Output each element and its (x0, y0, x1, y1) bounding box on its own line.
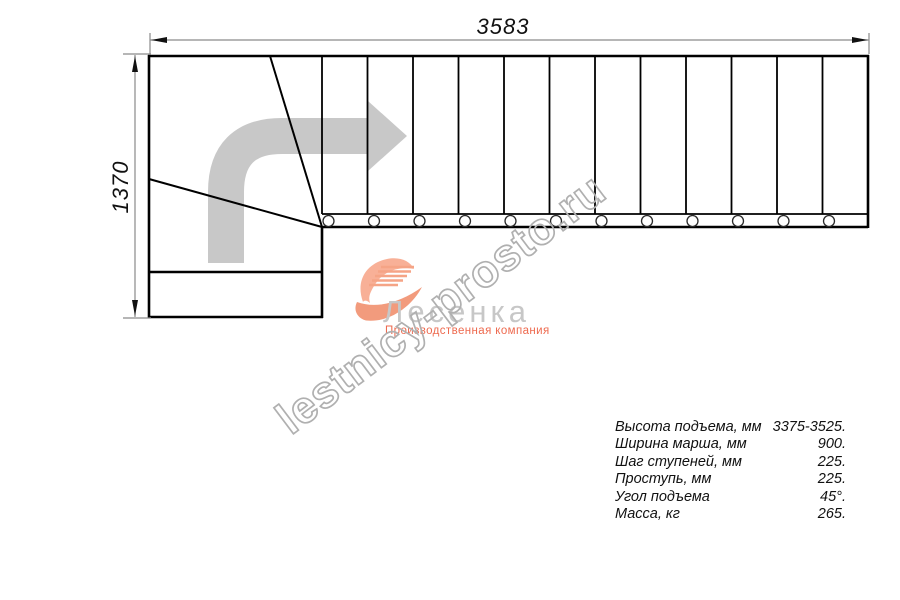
spec-row: Шаг ступеней, мм 225. (615, 454, 846, 471)
spec-value: 225. (818, 454, 846, 471)
spec-label: Шаг ступеней, мм (615, 454, 742, 471)
spec-row: Высота подъема, мм 3375-3525. (615, 419, 846, 436)
spec-value: 265. (818, 506, 846, 523)
spec-label: Угол подъема (615, 489, 710, 506)
spec-label: Проступь, мм (615, 471, 711, 488)
spec-value: 900. (818, 436, 846, 453)
spec-row: Масса, кг 265. (615, 506, 846, 523)
baluster-circle (778, 216, 789, 227)
spec-value: 225. (818, 471, 846, 488)
baluster-circle (733, 216, 744, 227)
baluster-circle (323, 216, 334, 227)
spec-row: Угол подъема 45°. (615, 489, 846, 506)
spec-value: 3375-3525. (773, 419, 846, 436)
spec-label: Ширина марша, мм (615, 436, 747, 453)
baluster-circle (596, 216, 607, 227)
direction-arrow-head (368, 101, 407, 171)
stair-drawing-page: 3583 1370 Лесенка Производственная ко (0, 0, 900, 600)
baluster-circle (687, 216, 698, 227)
stair-plan-outline (148, 55, 869, 318)
spec-value: 45°. (820, 489, 846, 506)
baluster-circle (460, 216, 471, 227)
dimension-arrow-left (151, 37, 167, 43)
spec-row: Проступь, мм 225. (615, 471, 846, 488)
baluster-circle (414, 216, 425, 227)
baluster-circle (551, 216, 562, 227)
specs-table: Высота подъема, мм 3375-3525. Ширина мар… (615, 419, 846, 523)
baluster-circles (323, 216, 835, 227)
height-dimension-label: 1370 (108, 161, 133, 214)
direction-arrow (226, 101, 407, 263)
spec-label: Масса, кг (615, 506, 680, 523)
dimension-height: 1370 (108, 54, 151, 318)
width-dimension-label: 3583 (477, 14, 530, 39)
spec-label: Высота подъема, мм (615, 419, 762, 436)
baluster-circle (642, 216, 653, 227)
baluster-circle (824, 216, 835, 227)
dimension-arrow-bottom (132, 300, 138, 316)
baluster-circle (369, 216, 380, 227)
baluster-circle (505, 216, 516, 227)
spec-row: Ширина марша, мм 900. (615, 436, 846, 453)
direction-arrow-shaft (226, 136, 368, 263)
dimension-arrow-top (132, 56, 138, 72)
logo-subtitle: Производственная компания (385, 325, 550, 337)
dimension-width: 3583 (150, 14, 869, 54)
dimension-arrow-right (852, 37, 868, 43)
